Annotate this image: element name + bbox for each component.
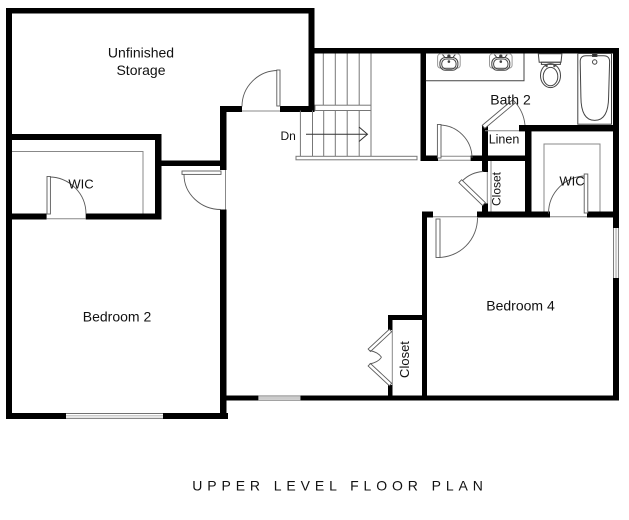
svg-text:Linen: Linen <box>489 133 520 147</box>
svg-text:UPPER LEVEL FLOOR PLAN: UPPER LEVEL FLOOR PLAN <box>192 478 488 494</box>
svg-text:Closet: Closet <box>490 171 504 206</box>
svg-text:Bedroom 4: Bedroom 4 <box>486 298 555 314</box>
svg-text:Closet: Closet <box>397 341 412 378</box>
svg-text:WIC: WIC <box>559 174 584 189</box>
svg-text:WIC: WIC <box>68 177 93 192</box>
svg-text:Bath 2: Bath 2 <box>490 92 531 108</box>
svg-text:Unfinished: Unfinished <box>108 45 174 61</box>
svg-text:Dn: Dn <box>281 129 296 143</box>
svg-text:Bedroom 2: Bedroom 2 <box>83 309 152 325</box>
svg-text:Storage: Storage <box>116 62 165 78</box>
